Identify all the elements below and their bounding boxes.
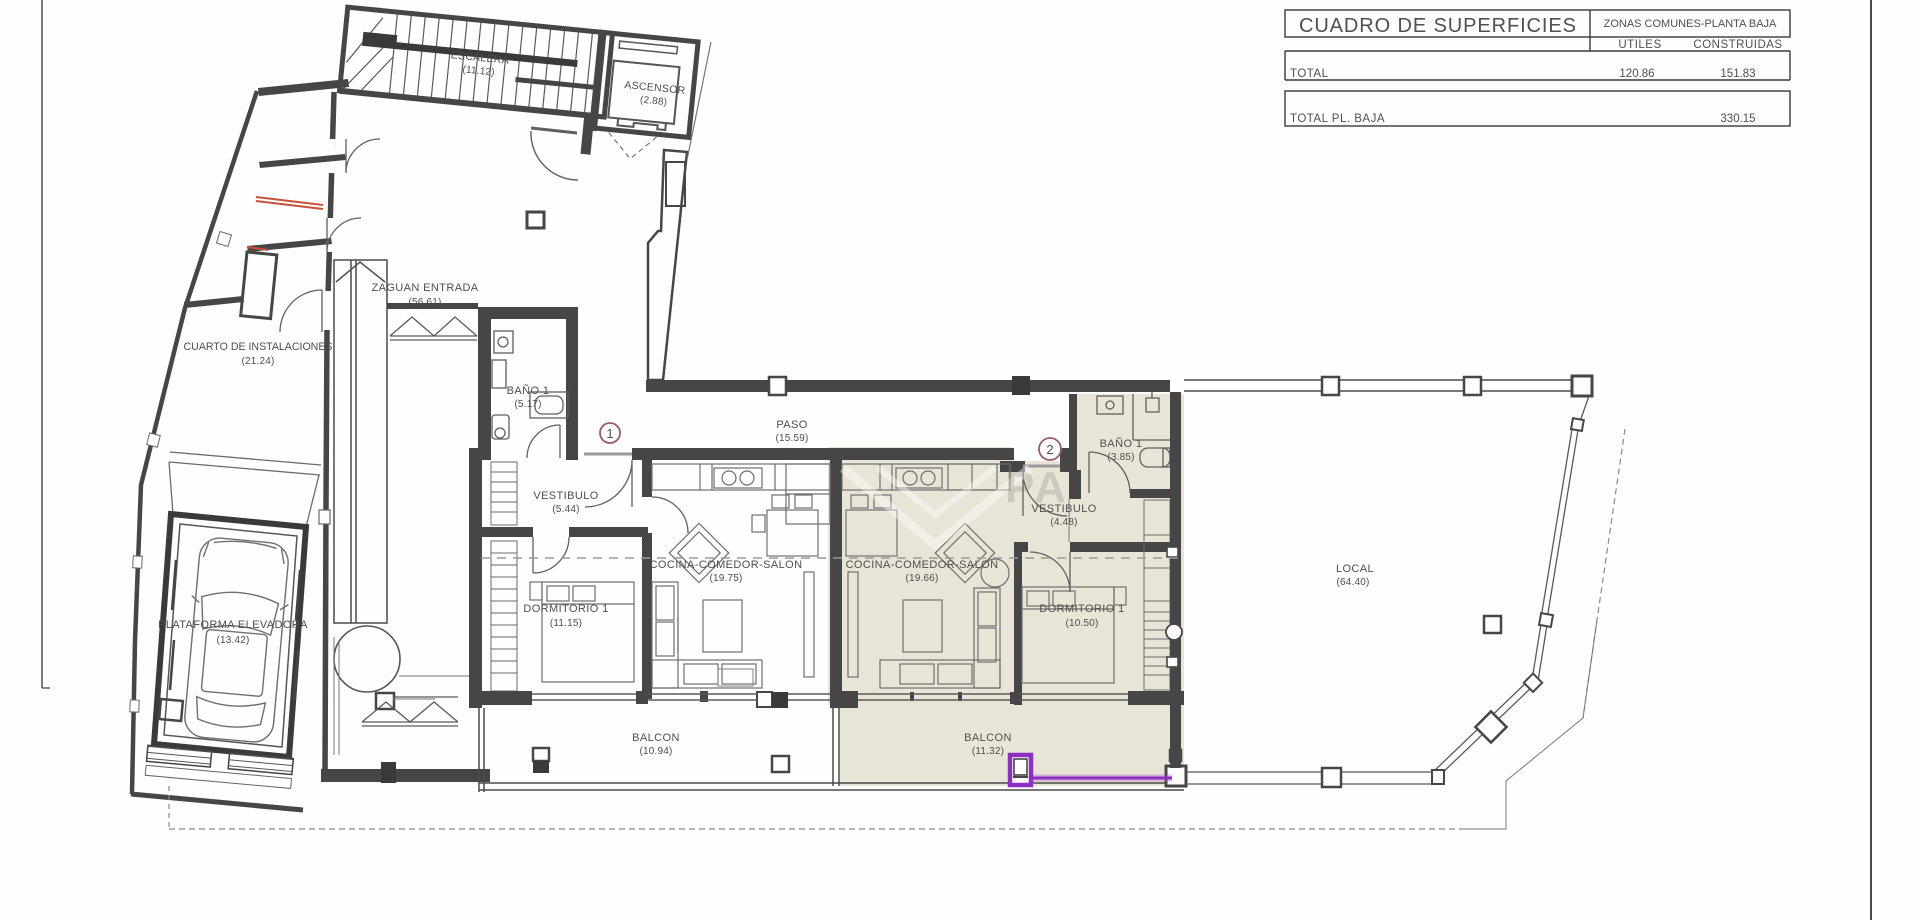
- svg-text:BAÑO 1: BAÑO 1: [507, 384, 550, 397]
- svg-text:(15.59): (15.59): [775, 433, 808, 444]
- svg-text:TOTAL: TOTAL: [1290, 68, 1329, 80]
- svg-text:330.15: 330.15: [1720, 113, 1755, 125]
- svg-text:(11.32): (11.32): [972, 746, 1004, 757]
- svg-text:(13.42): (13.42): [216, 635, 249, 646]
- svg-text:COCINA-COMEDOR-SALON: COCINA-COMEDOR-SALON: [650, 559, 803, 571]
- svg-text:CUADRO DE SUPERFICIES: CUADRO DE SUPERFICIES: [1299, 15, 1577, 37]
- svg-text:COCINA-COMEDOR-SALON: COCINA-COMEDOR-SALON: [846, 559, 999, 571]
- svg-text:(10.94): (10.94): [639, 746, 672, 757]
- svg-text:VESTIBULO: VESTIBULO: [533, 490, 598, 502]
- svg-text:ZONAS COMUNES-PLANTA BAJA: ZONAS COMUNES-PLANTA BAJA: [1604, 18, 1777, 30]
- svg-text:(11.15): (11.15): [550, 618, 582, 629]
- svg-text:120.86: 120.86: [1619, 68, 1654, 80]
- svg-text:VESTIBULO: VESTIBULO: [1031, 503, 1096, 515]
- svg-text:(56.61): (56.61): [408, 297, 441, 308]
- svg-text:LOCAL: LOCAL: [1336, 563, 1374, 575]
- svg-text:(19.66): (19.66): [905, 573, 938, 584]
- svg-text:1: 1: [606, 426, 613, 441]
- svg-text:BAÑO 1: BAÑO 1: [1100, 437, 1143, 450]
- svg-text:TOTAL PL. BAJA: TOTAL PL. BAJA: [1290, 113, 1385, 125]
- svg-text:(4.48): (4.48): [1050, 517, 1077, 528]
- svg-text:PLATAFORMA ELEVADORA: PLATAFORMA ELEVADORA: [158, 619, 308, 631]
- svg-text:151.83: 151.83: [1720, 68, 1755, 80]
- svg-text:CONSTRUIDAS: CONSTRUIDAS: [1693, 39, 1782, 51]
- svg-text:(19.75): (19.75): [709, 573, 742, 584]
- svg-text:(3.85): (3.85): [1107, 452, 1134, 463]
- svg-text:(21.24): (21.24): [241, 356, 274, 367]
- svg-text:DORMITORIO 1: DORMITORIO 1: [1039, 603, 1124, 615]
- svg-text:2: 2: [1046, 442, 1053, 457]
- svg-text:BALCON: BALCON: [632, 732, 680, 744]
- svg-text:(5.44): (5.44): [552, 504, 579, 515]
- svg-text:UTILES: UTILES: [1618, 39, 1661, 51]
- svg-text:(10.50): (10.50): [1065, 618, 1098, 629]
- svg-text:DORMITORIO 1: DORMITORIO 1: [523, 603, 608, 615]
- svg-text:ZAGUAN ENTRADA: ZAGUAN ENTRADA: [371, 282, 478, 294]
- svg-text:BALCON: BALCON: [964, 732, 1012, 744]
- svg-text:(5.17): (5.17): [514, 399, 541, 410]
- svg-text:CUARTO DE INSTALACIONES: CUARTO DE INSTALACIONES: [184, 341, 333, 353]
- svg-text:(64.40): (64.40): [1336, 577, 1369, 588]
- svg-text:PASO: PASO: [776, 419, 807, 431]
